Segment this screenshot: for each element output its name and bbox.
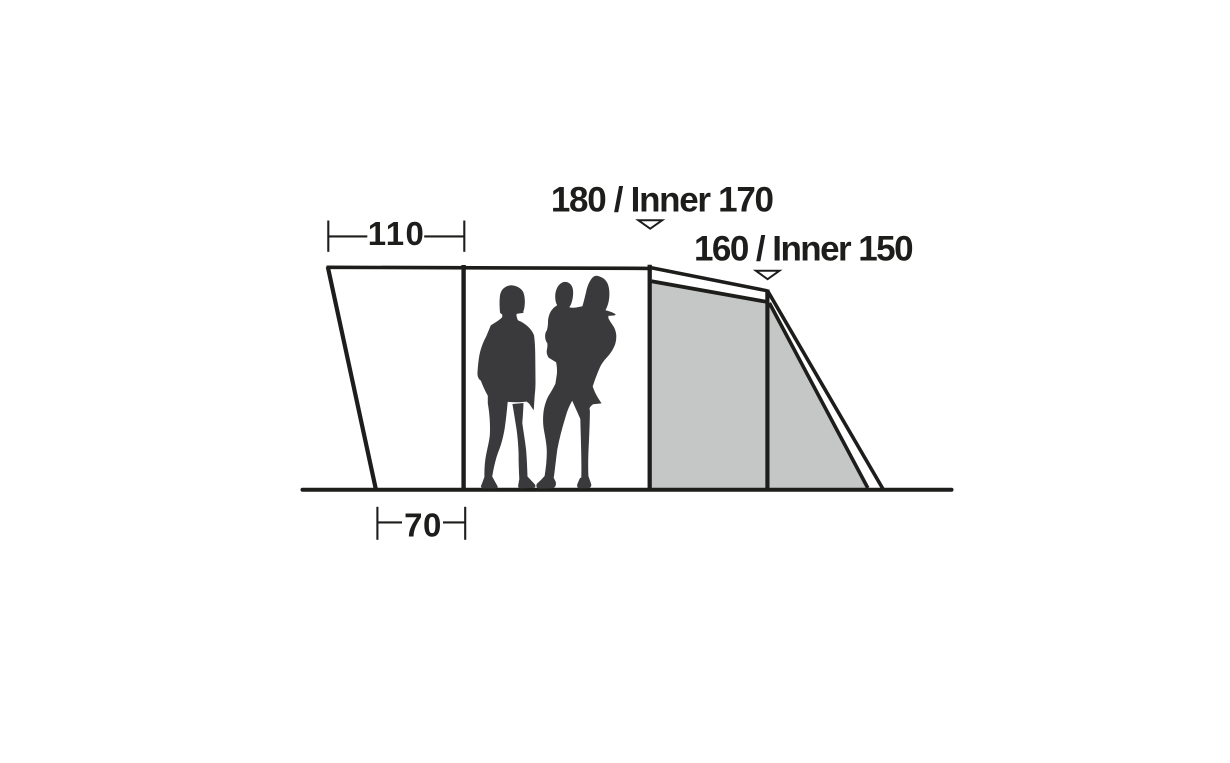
svg-text:70: 70 (404, 506, 442, 543)
svg-text:110: 110 (368, 215, 425, 252)
svg-text:180 / Inner 170: 180 / Inner 170 (551, 180, 774, 219)
svg-text:160 / Inner 150: 160 / Inner 150 (694, 229, 913, 268)
